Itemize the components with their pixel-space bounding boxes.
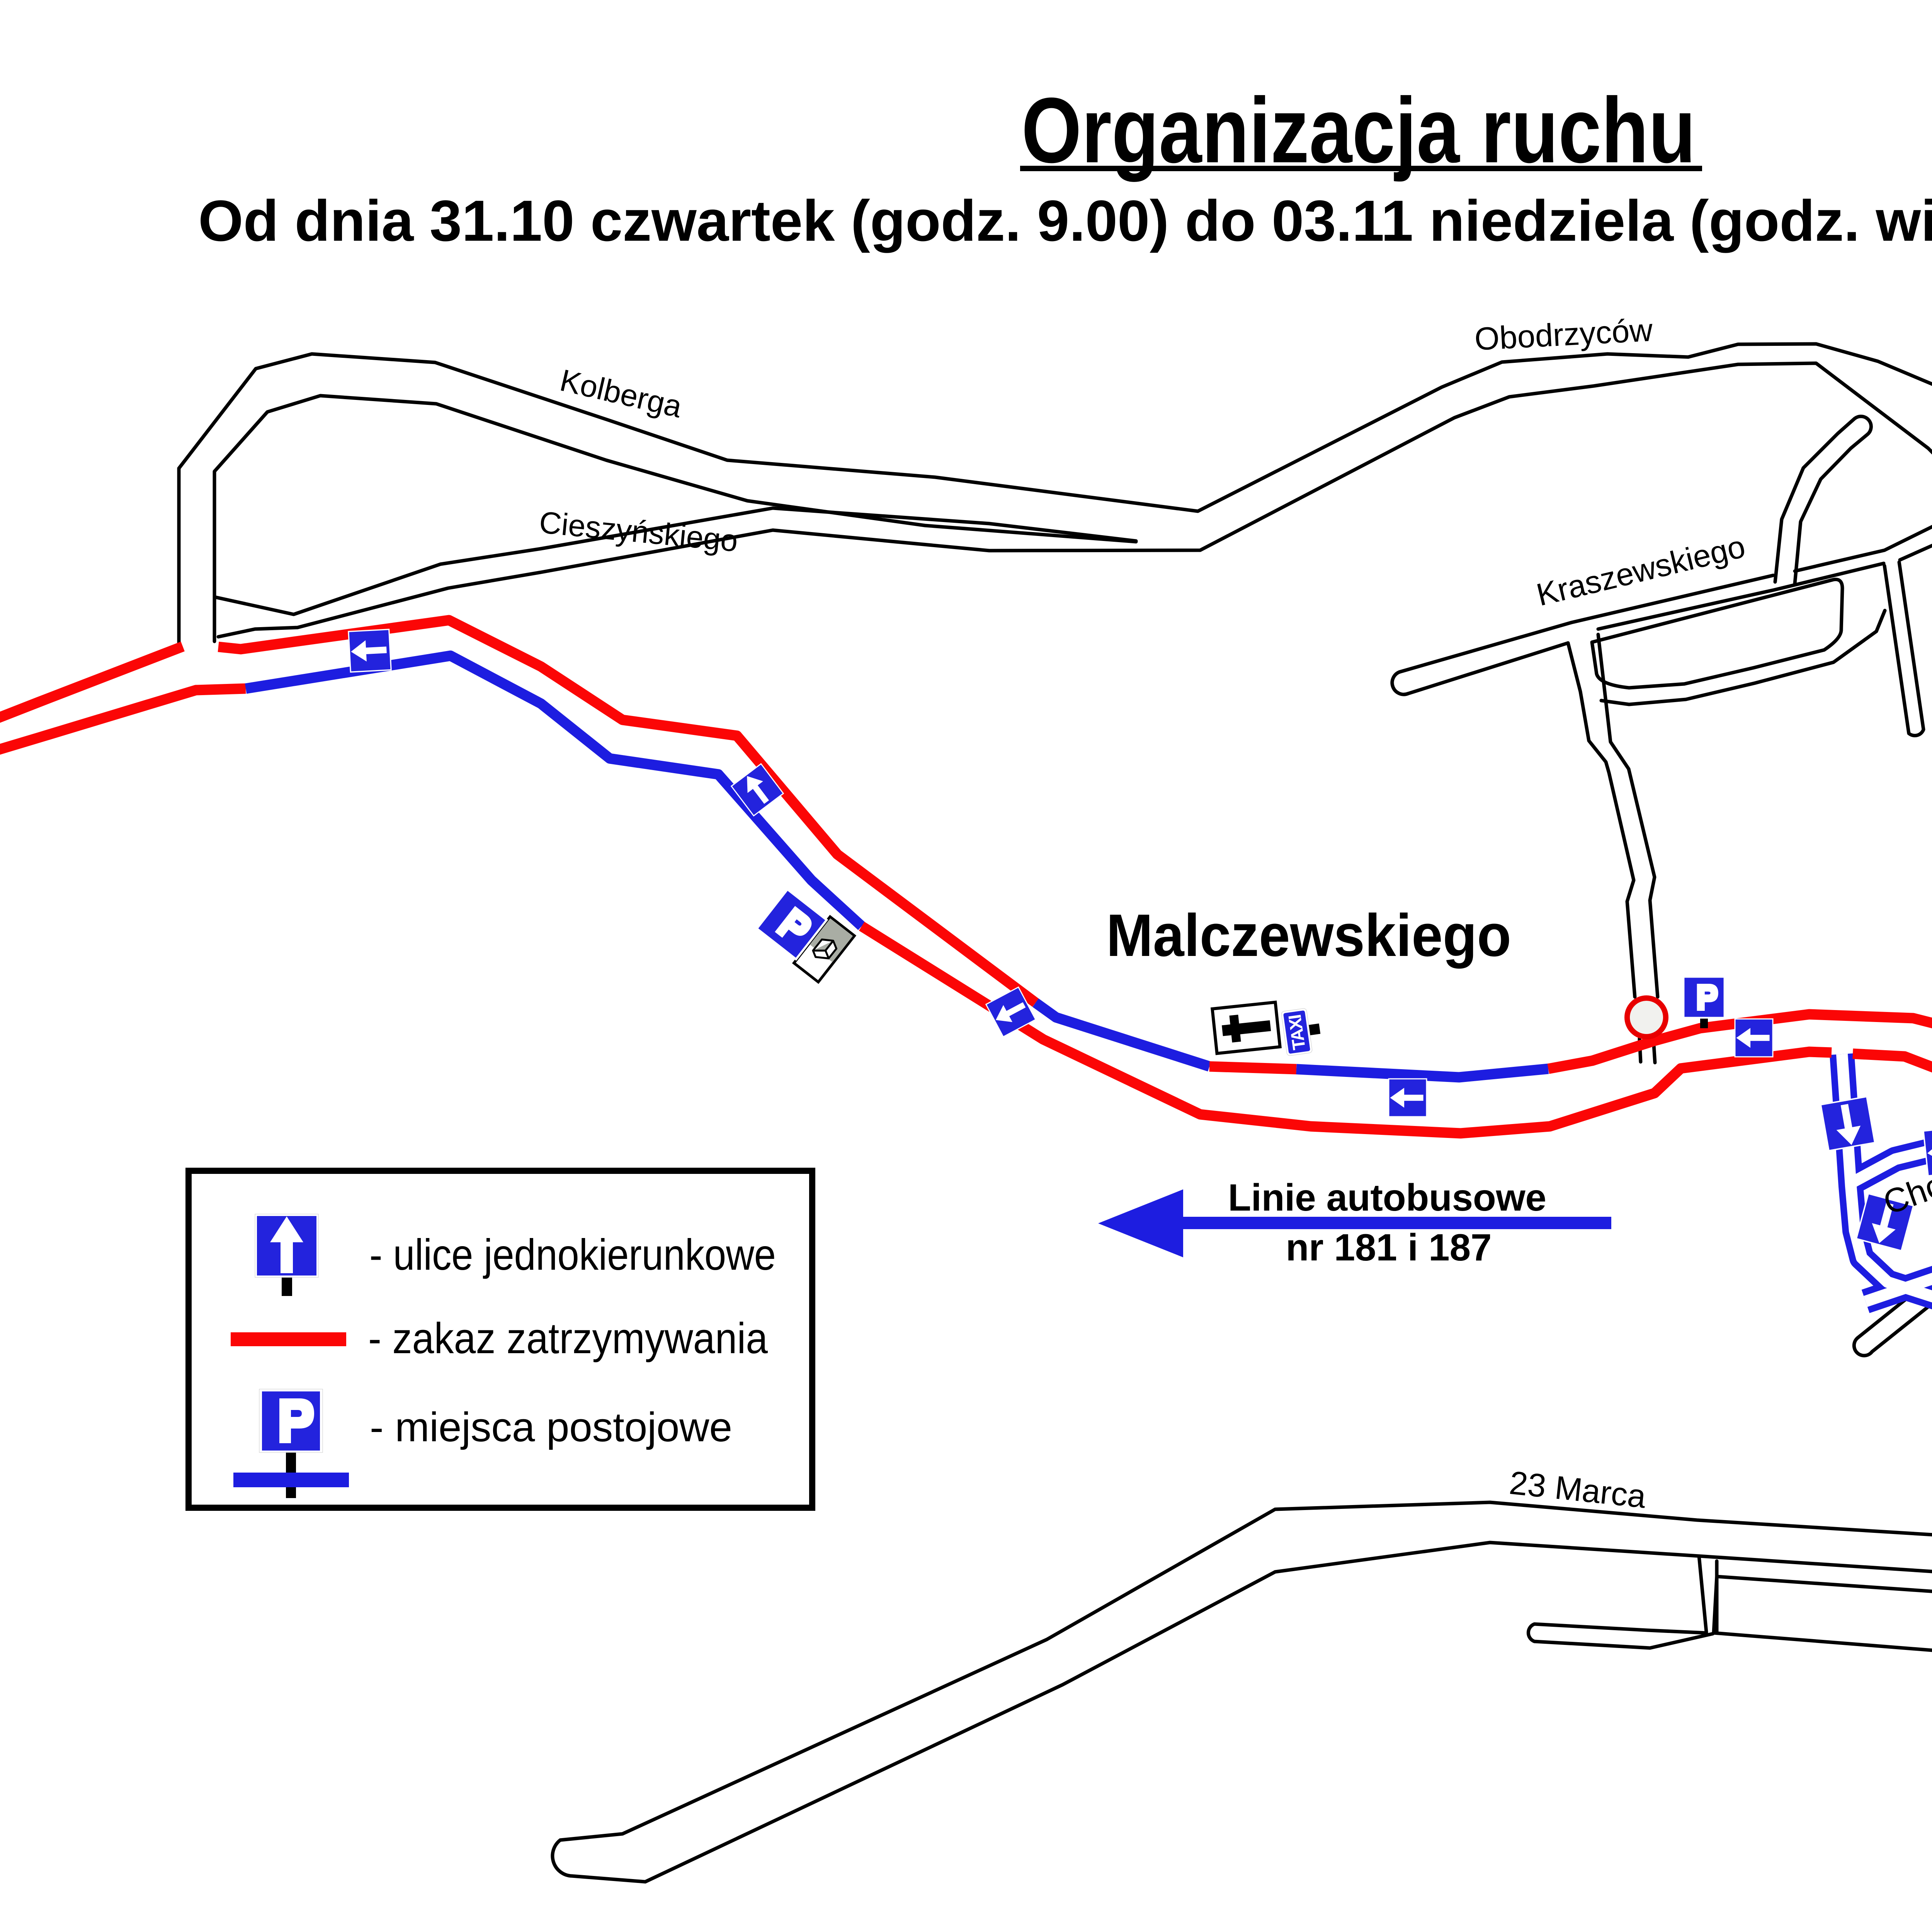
svg-text:- zakaz zatrzymywania: - zakaz zatrzymywania (368, 1314, 768, 1362)
svg-text:Linie autobusowe: Linie autobusowe (1228, 1176, 1546, 1219)
svg-text:Od dnia 31.10 czwartek (godz.: Od dnia 31.10 czwartek (godz. 9.00) do 0… (198, 188, 1932, 253)
svg-text:- ulice jednokierunkowe: - ulice jednokierunkowe (369, 1230, 776, 1279)
svg-text:- miejsca postojowe: - miejsca postojowe (370, 1404, 732, 1450)
svg-text:nr 181 i 187: nr 181 i 187 (1286, 1226, 1492, 1269)
svg-text:Malczewskiego: Malczewskiego (1106, 901, 1511, 969)
